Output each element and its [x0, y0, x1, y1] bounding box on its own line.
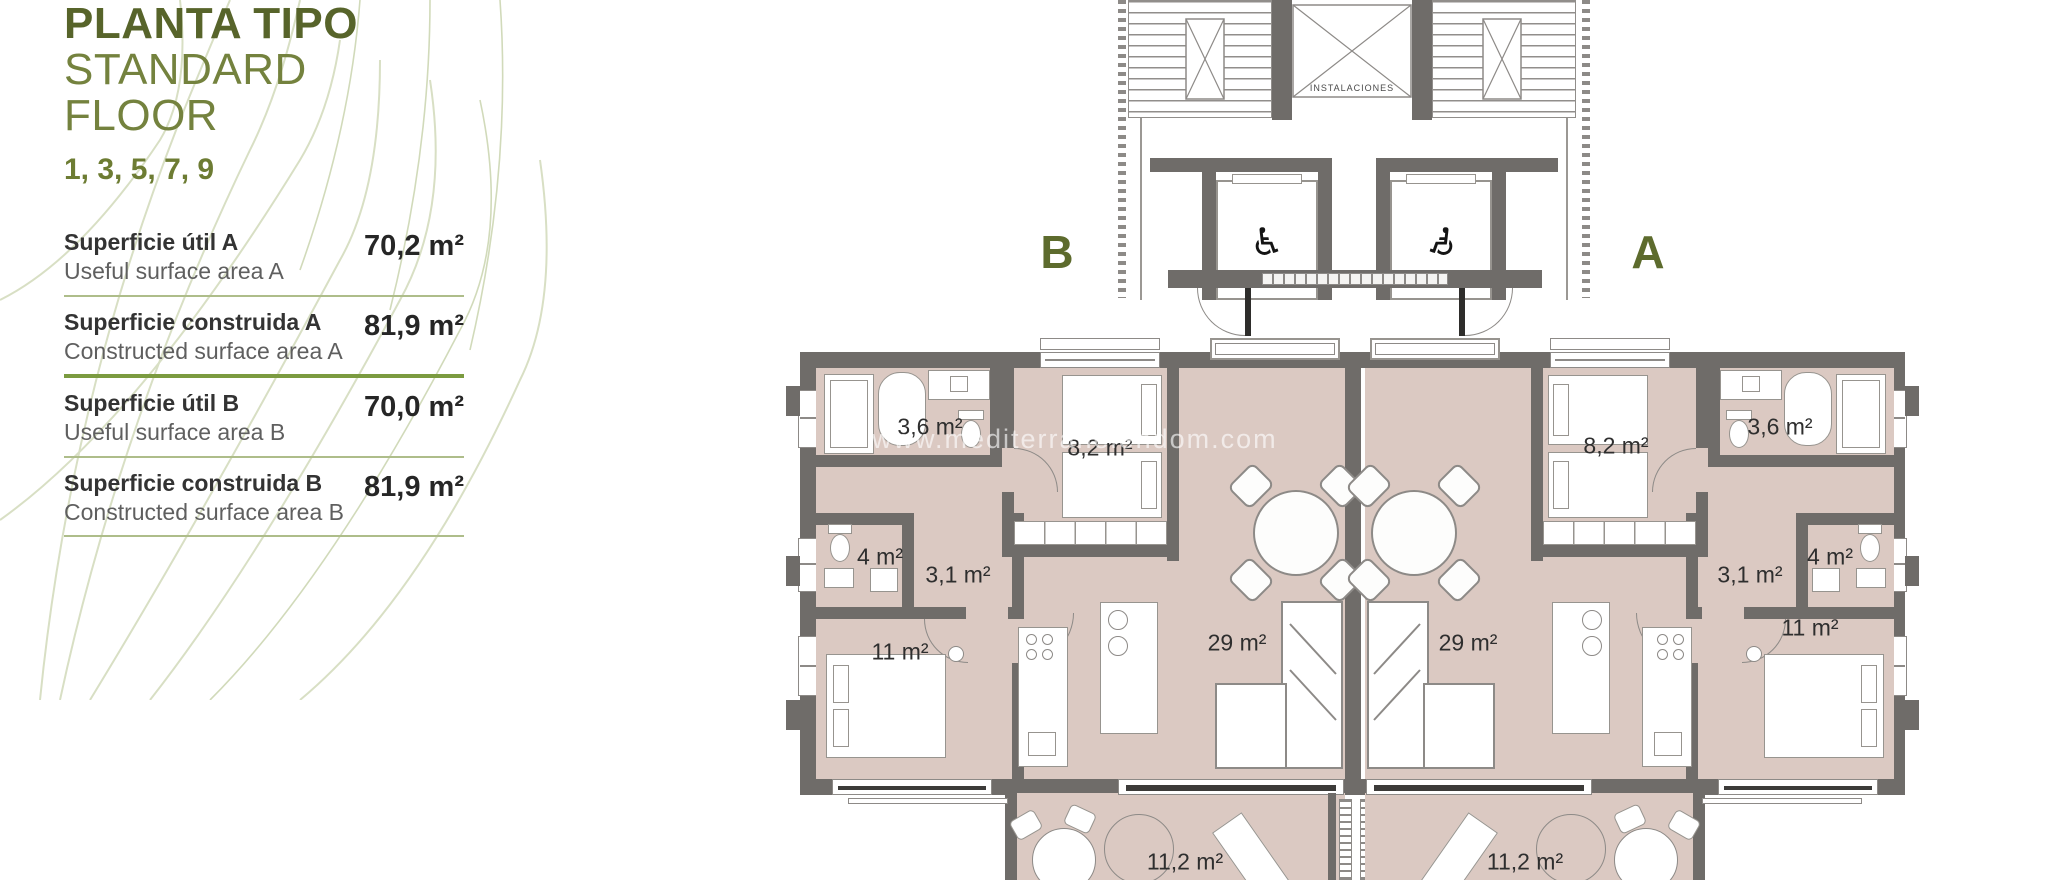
bed — [1764, 654, 1884, 758]
table-row: Superficie útil B Useful surface area B … — [64, 378, 464, 456]
wardrobe — [1543, 521, 1696, 545]
page-title-english: STANDARD FLOOR — [64, 47, 464, 139]
wheelchair-icon: ♿ — [1424, 220, 1458, 264]
facade-column — [1905, 386, 1919, 416]
shaft-x-box — [1482, 18, 1522, 100]
wheelchair-icon: ♿ — [1250, 220, 1284, 264]
toilet — [830, 534, 850, 562]
elevator-door — [1406, 174, 1476, 184]
room-label-a-bedroom-small: 8,2 m² — [1583, 433, 1648, 460]
row-labels: Superficie construida B Constructed surf… — [64, 469, 344, 527]
unit-b-label: B — [1040, 225, 1073, 279]
wall — [1693, 793, 1705, 880]
wall — [1708, 455, 1894, 467]
row-label-es: Superficie útil A — [64, 228, 284, 257]
trellis — [1339, 799, 1352, 880]
balcony-planter — [1210, 338, 1340, 360]
room-label-b-hall: 3,1 m² — [925, 562, 990, 589]
room-label-a-bath-small: 3,6 m² — [1747, 414, 1812, 441]
toilet — [1729, 420, 1749, 448]
watermark: www.mediterraneiendom.com — [872, 424, 1278, 455]
wall — [1696, 368, 1708, 448]
sink — [950, 376, 968, 392]
facade-column — [786, 386, 800, 416]
door-swing-arc — [1197, 288, 1245, 336]
room-label-b-bedroom: 11 m² — [871, 639, 928, 666]
row-label-es: Superficie construida B — [64, 469, 344, 498]
nightstand — [948, 646, 964, 662]
facade-column — [786, 556, 800, 586]
kitchen-sink — [1028, 732, 1056, 756]
sink — [1856, 568, 1886, 588]
wall — [1002, 545, 1179, 557]
table-row: Superficie útil A Useful surface area A … — [64, 217, 464, 295]
shower — [1812, 568, 1840, 592]
row-label-en: Constructed surface area B — [64, 498, 344, 527]
door-leaf — [1245, 288, 1251, 336]
bed — [1062, 452, 1162, 518]
toilet — [1860, 534, 1880, 562]
speaker — [1582, 636, 1602, 656]
balcony-planter — [1370, 338, 1500, 360]
room-label-a-living: 29 m² — [1439, 630, 1498, 657]
row-value: 70,2 m² — [364, 228, 464, 263]
wall — [1272, 0, 1292, 120]
wall — [816, 455, 1002, 467]
row-label-es: Superficie útil B — [64, 389, 285, 418]
facade-column — [1905, 556, 1919, 586]
table-row: Superficie construida B Constructed surf… — [64, 458, 464, 536]
room-label-a-hall: 3,1 m² — [1717, 562, 1782, 589]
wardrobe — [1014, 521, 1167, 545]
core-boundary-line — [1566, 118, 1568, 300]
shower-tray — [830, 380, 868, 448]
nightstand — [1746, 646, 1762, 662]
wall — [1328, 793, 1336, 880]
room-label-b-bath: 4 m² — [857, 544, 903, 571]
dining-set — [1344, 463, 1484, 603]
wall — [1708, 368, 1720, 467]
row-labels: Superficie construida A Constructed surf… — [64, 308, 343, 366]
wall — [816, 607, 966, 619]
bed — [826, 654, 946, 758]
sofa — [1214, 600, 1344, 770]
table-row: Superficie construida A Constructed surf… — [64, 297, 464, 375]
room-label-a-bath: 4 m² — [1807, 544, 1853, 571]
stair-serration — [1118, 0, 1126, 298]
info-panel: PLANTA TIPO STANDARD FLOOR 1, 3, 5, 7, 9… — [64, 2, 464, 537]
row-value: 70,0 m² — [364, 389, 464, 424]
floor-numbers: 1, 3, 5, 7, 9 — [64, 153, 464, 187]
wall — [902, 513, 914, 619]
room-label-b-living: 29 m² — [1208, 630, 1267, 657]
row-label-en: Constructed surface area A — [64, 337, 343, 366]
row-labels: Superficie útil B Useful surface area B — [64, 389, 285, 447]
facade-column — [1905, 700, 1919, 730]
toilet-tank — [1858, 524, 1882, 534]
wall — [1390, 158, 1558, 172]
shower-tray — [1842, 380, 1880, 448]
sink — [1742, 376, 1760, 392]
shower — [870, 568, 898, 592]
room-label-a-terrace: 11,2 m² — [1487, 849, 1563, 876]
unit-a-label: A — [1631, 225, 1664, 279]
elevator-door — [1232, 174, 1302, 184]
wall — [1531, 368, 1543, 561]
kitchen-sink — [1654, 732, 1682, 756]
sofa — [1366, 600, 1496, 770]
page-title-spanish: PLANTA TIPO — [64, 2, 464, 47]
wall — [1531, 545, 1708, 557]
bed — [1548, 452, 1648, 518]
wall — [1005, 793, 1017, 880]
core-boundary-line — [1140, 118, 1142, 300]
row-labels: Superficie útil A Useful surface area A — [64, 228, 284, 286]
speaker — [1108, 636, 1128, 656]
wall — [1150, 158, 1318, 172]
wall — [1167, 368, 1179, 561]
stair-serration — [1582, 0, 1590, 298]
brochure-page: PLANTA TIPO STANDARD FLOOR 1, 3, 5, 7, 9… — [0, 0, 2048, 880]
door-swing-arc — [1465, 288, 1513, 336]
row-label-en: Useful surface area B — [64, 418, 285, 447]
room-label-a-bedroom: 11 m² — [1781, 615, 1838, 642]
wall — [1412, 0, 1432, 120]
row-label-es: Superficie construida A — [64, 308, 343, 337]
room-label-b-terrace: 11,2 m² — [1147, 849, 1223, 876]
divider — [64, 535, 464, 537]
row-label-en: Useful surface area A — [64, 257, 284, 286]
shaft-x-box — [1185, 18, 1225, 100]
speaker — [1108, 610, 1128, 630]
surface-area-table: Superficie útil A Useful surface area A … — [64, 217, 464, 537]
installations-label: INSTALACIONES — [1310, 83, 1394, 93]
row-value: 81,9 m² — [364, 308, 464, 343]
facade-column — [786, 700, 800, 730]
sink — [824, 568, 854, 588]
speaker — [1582, 610, 1602, 630]
row-value: 81,9 m² — [364, 469, 464, 504]
mailboxes — [1262, 273, 1448, 285]
toilet-tank — [828, 524, 852, 534]
